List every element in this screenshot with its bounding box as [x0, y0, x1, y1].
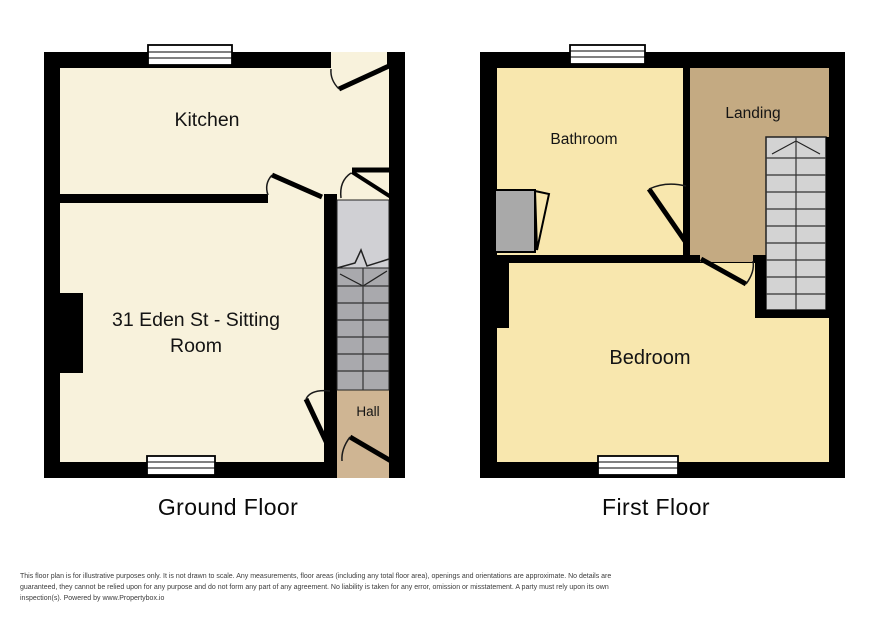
first-floor-title: First Floor — [506, 494, 806, 521]
bathroom-bedroom-wall — [480, 255, 700, 263]
sitting-room-window — [147, 456, 215, 475]
ground-stairs — [337, 200, 389, 390]
floorplan-page: Kitchen 31 Eden St - Sitting Room Hall — [0, 0, 886, 620]
bathroom-label: Bathroom — [550, 131, 617, 148]
kitchen-divider-wall — [60, 194, 268, 203]
stair-enclosure-wall-left — [755, 255, 766, 318]
stair-right-strip — [826, 137, 829, 318]
bedroom-label: Bedroom — [609, 347, 690, 369]
bathroom-divider-wall — [683, 68, 690, 185]
floorplan-drawing: Kitchen 31 Eden St - Sitting Room Hall — [0, 0, 886, 560]
disclaimer-text: This floor plan is for illustrative purp… — [20, 572, 645, 604]
stairwell-wall-stub — [324, 450, 337, 478]
stair-enclosure-wall-bottom — [755, 310, 829, 318]
kitchen-window — [148, 45, 232, 65]
landing-label: Landing — [725, 105, 780, 122]
ground-floor-plan: Kitchen 31 Eden St - Sitting Room Hall — [44, 45, 405, 478]
hall-label: Hall — [356, 404, 379, 419]
first-stairs — [766, 137, 826, 310]
first-floor-plan: Bathroom Landing Bedroom — [480, 45, 845, 478]
ground-floor-title: Ground Floor — [78, 494, 378, 521]
front-door-opening — [331, 52, 387, 68]
first-chimney-breast — [490, 256, 509, 328]
sitting-room-label-line2: Room — [170, 335, 222, 357]
sitting-room-label-line1: 31 Eden St - Sitting — [112, 309, 280, 331]
stairwell-wall — [324, 194, 337, 390]
ground-chimney-breast — [58, 293, 83, 373]
kitchen-label: Kitchen — [174, 109, 239, 131]
bedroom-window — [598, 456, 678, 475]
bathroom-window — [570, 45, 645, 64]
